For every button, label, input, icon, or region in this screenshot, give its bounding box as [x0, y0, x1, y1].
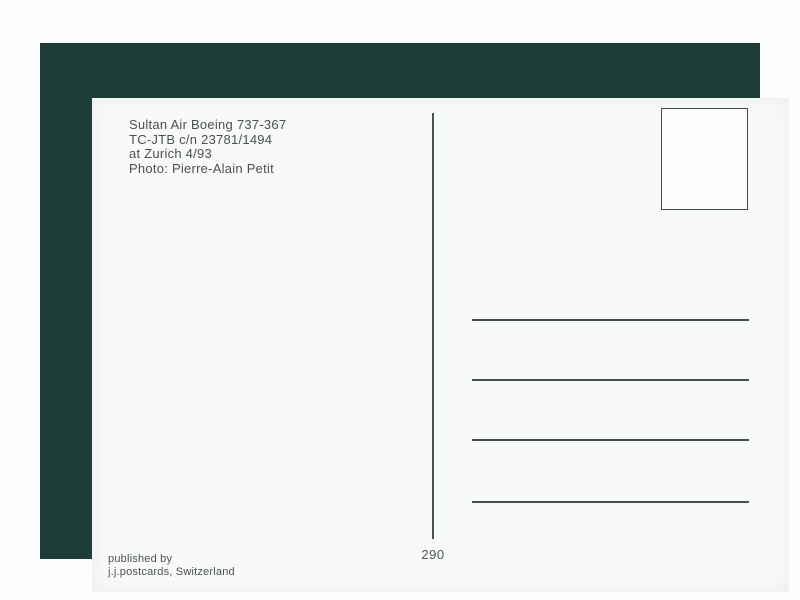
caption-line-registration: TC-JTB c/n 23781/1494: [129, 133, 286, 148]
postcard-back: Sultan Air Boeing 737-367 TC-JTB c/n 237…: [92, 98, 789, 592]
address-line: [472, 501, 749, 503]
publisher-line-1: published by: [108, 553, 235, 566]
caption-line-aircraft: Sultan Air Boeing 737-367: [129, 118, 286, 133]
postcard-mat-frame: Sultan Air Boeing 737-367 TC-JTB c/n 237…: [40, 43, 760, 559]
address-line: [472, 319, 749, 321]
photo-caption: Sultan Air Boeing 737-367 TC-JTB c/n 237…: [129, 118, 286, 176]
vertical-divider: [432, 113, 434, 539]
address-line: [472, 379, 749, 381]
address-line: [472, 439, 749, 441]
card-number: 290: [414, 547, 452, 562]
publisher-credit: published by j.j.postcards, Switzerland: [108, 553, 235, 579]
stamp-box: [661, 108, 748, 210]
address-lines: [472, 319, 749, 509]
publisher-line-2: j.j.postcards, Switzerland: [108, 566, 235, 579]
caption-line-photographer: Photo: Pierre-Alain Petit: [129, 162, 286, 177]
caption-line-location: at Zurich 4/93: [129, 147, 286, 162]
